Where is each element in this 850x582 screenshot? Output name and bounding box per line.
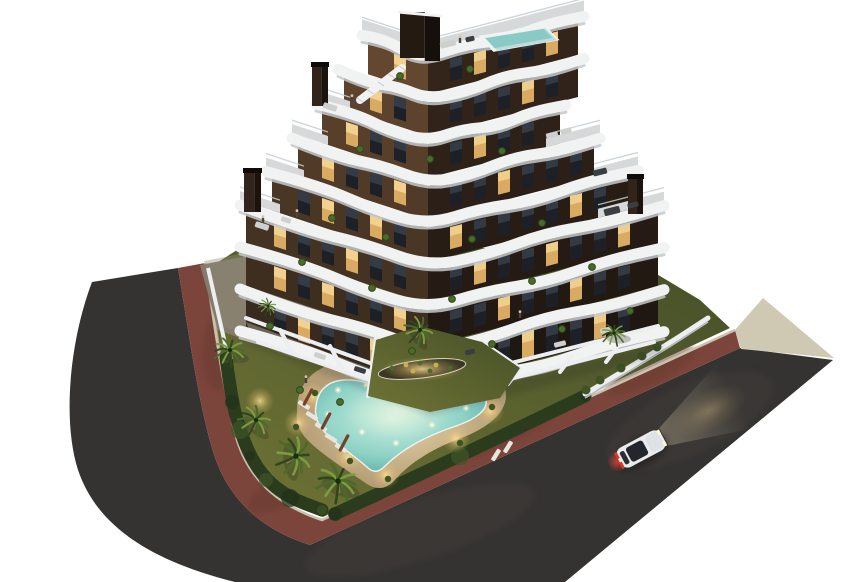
chimney	[244, 172, 254, 212]
chimney	[312, 66, 322, 106]
pool-light-dot	[337, 389, 340, 392]
render-canvas	[0, 0, 850, 582]
balcony-plant	[539, 220, 546, 227]
stair-bulkhead	[400, 12, 425, 58]
bed-plant	[418, 361, 423, 366]
person-figure	[351, 94, 354, 102]
balcony-plant	[297, 387, 304, 394]
balcony-plant	[397, 73, 404, 80]
deck-shrub	[385, 476, 391, 482]
chimney-side	[637, 178, 643, 214]
hedge-blob	[245, 451, 255, 461]
stair-bulkhead-side	[425, 15, 440, 61]
pool-light-dot	[465, 407, 468, 410]
bed-plant	[404, 363, 409, 368]
chimney-side	[254, 172, 261, 212]
sidewalk-wedge	[735, 298, 834, 358]
pool-light-dot	[431, 424, 434, 427]
chimney	[628, 178, 637, 214]
bed-plant	[411, 369, 416, 374]
balcony-plant	[369, 285, 376, 292]
balcony-plant	[559, 326, 566, 333]
bed-plant	[434, 363, 439, 368]
palm-crown	[612, 331, 615, 334]
deck-shrub	[489, 404, 495, 410]
person-figure	[305, 375, 308, 383]
balcony-plant	[589, 264, 596, 271]
chimney-side	[322, 66, 328, 106]
hedge-blob	[281, 489, 299, 507]
architectural-render-image	[0, 0, 850, 582]
balcony-plant	[529, 278, 536, 285]
balcony-plant	[489, 341, 496, 348]
balcony-plant	[449, 296, 456, 303]
hedge-blob	[259, 473, 273, 487]
person-figure	[519, 310, 522, 318]
balcony-plant	[499, 148, 506, 155]
chimney-cap	[243, 168, 262, 173]
pool-light-dot	[395, 442, 398, 445]
balcony-plant	[337, 399, 344, 406]
bush	[582, 386, 591, 395]
balcony-plant	[267, 323, 274, 330]
hedge-blob	[317, 505, 327, 515]
bush	[596, 376, 605, 385]
balcony-plant	[467, 66, 474, 73]
deck-shrub	[457, 440, 463, 446]
bed-plant	[390, 366, 395, 371]
person-figure	[459, 35, 462, 43]
balcony-plant	[357, 146, 364, 153]
balcony-plant	[299, 259, 306, 266]
balcony-plant	[383, 234, 390, 241]
balcony-plant	[329, 215, 336, 222]
chimney-cap	[627, 174, 644, 179]
person-figure	[296, 209, 299, 217]
apartment-building	[240, 0, 664, 412]
bed-plant	[428, 369, 433, 374]
person-figure	[262, 215, 265, 223]
bed-plant	[448, 366, 453, 371]
hedge-blob	[328, 507, 342, 521]
balcony-plant	[469, 236, 476, 243]
chimney-cap	[311, 62, 329, 67]
deck-shrub	[293, 424, 299, 430]
balcony-plant	[427, 156, 434, 163]
balcony-plant	[627, 308, 634, 315]
hedge-blob	[225, 395, 239, 409]
balcony-plant	[409, 348, 416, 355]
deck-shrub	[347, 458, 353, 464]
pool-light-dot	[361, 431, 364, 434]
